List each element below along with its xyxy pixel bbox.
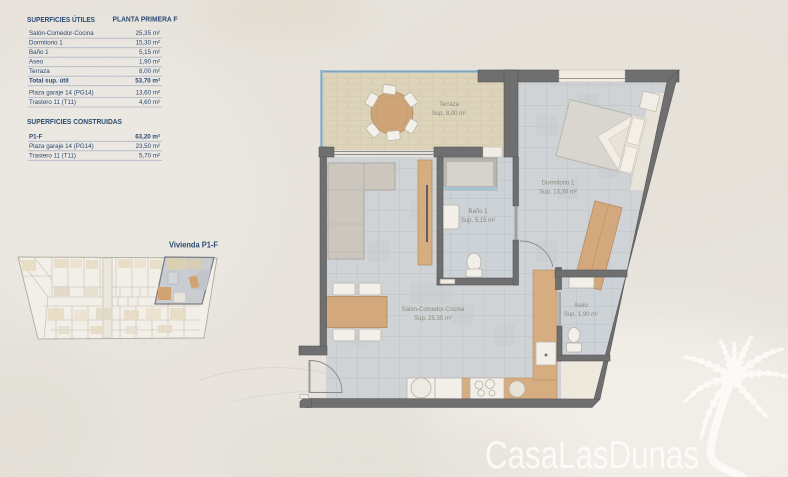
- svg-text:Trastero 11 (T11): Trastero 11 (T11): [29, 152, 76, 159]
- svg-text:Salón-Comedor-Cocina: Salón-Comedor-Cocina: [402, 307, 465, 313]
- svg-text:Total sup. útil: Total sup. útil: [29, 78, 69, 85]
- svg-text:Salón-Comedor-Cocina: Salón-Comedor-Cocina: [29, 30, 94, 37]
- svg-text:4,60 m²: 4,60 m²: [139, 99, 160, 106]
- svg-text:PLANTA PRIMERA F: PLANTA PRIMERA F: [113, 15, 178, 24]
- svg-text:23,50 m²: 23,50 m²: [136, 143, 160, 150]
- svg-text:25,35 m²: 25,35 m²: [136, 30, 160, 37]
- svg-text:Aseo: Aseo: [574, 303, 588, 309]
- svg-text:5,15 m²: 5,15 m²: [139, 49, 160, 56]
- svg-text:1,90 m²: 1,90 m²: [139, 59, 160, 66]
- svg-text:Aseo: Aseo: [29, 59, 44, 66]
- svg-text:Dormitorio 1: Dormitorio 1: [29, 40, 63, 47]
- svg-text:Sup. 25,35 m²: Sup. 25,35 m²: [414, 316, 452, 322]
- svg-text:P1-F: P1-F: [29, 133, 43, 140]
- svg-text:Sup. 13,30 m²: Sup. 13,30 m²: [539, 190, 577, 196]
- svg-text:Plaza garaje 14 (PG14): Plaza garaje 14 (PG14): [29, 143, 94, 150]
- svg-text:63,20 m²: 63,20 m²: [135, 133, 160, 140]
- svg-text:Baño 1: Baño 1: [468, 209, 488, 215]
- svg-text:Baño 1: Baño 1: [29, 49, 49, 56]
- svg-text:13,60 m²: 13,60 m²: [136, 90, 160, 97]
- svg-text:Sup. 8,00 m²: Sup. 8,00 m²: [432, 111, 466, 117]
- svg-text:CasaLasDunas: CasaLasDunas: [485, 434, 699, 477]
- svg-text:Plaza garaje 14 (PG14): Plaza garaje 14 (PG14): [29, 90, 94, 97]
- svg-text:53,70 m²: 53,70 m²: [135, 78, 160, 85]
- svg-text:SUPERFICIES CONSTRUIDAS: SUPERFICIES CONSTRUIDAS: [27, 117, 122, 126]
- svg-text:Vivienda P1-F: Vivienda P1-F: [169, 241, 218, 250]
- svg-text:5,70 m²: 5,70 m²: [139, 152, 160, 159]
- svg-text:Terraza: Terraza: [439, 102, 460, 108]
- svg-text:SUPERFICIES ÚTILES: SUPERFICIES ÚTILES: [27, 15, 95, 24]
- svg-text:Dormitorio 1: Dormitorio 1: [542, 181, 575, 187]
- svg-text:Sup. 5,15 m²: Sup. 5,15 m²: [461, 218, 495, 224]
- svg-text:Trastero 11 (T11): Trastero 11 (T11): [29, 99, 76, 106]
- svg-text:Sup. 1,90 m²: Sup. 1,90 m²: [564, 312, 598, 318]
- svg-text:Terraza: Terraza: [29, 68, 50, 75]
- svg-text:8,00 m²: 8,00 m²: [139, 68, 160, 75]
- svg-text:15,30 m²: 15,30 m²: [136, 40, 160, 47]
